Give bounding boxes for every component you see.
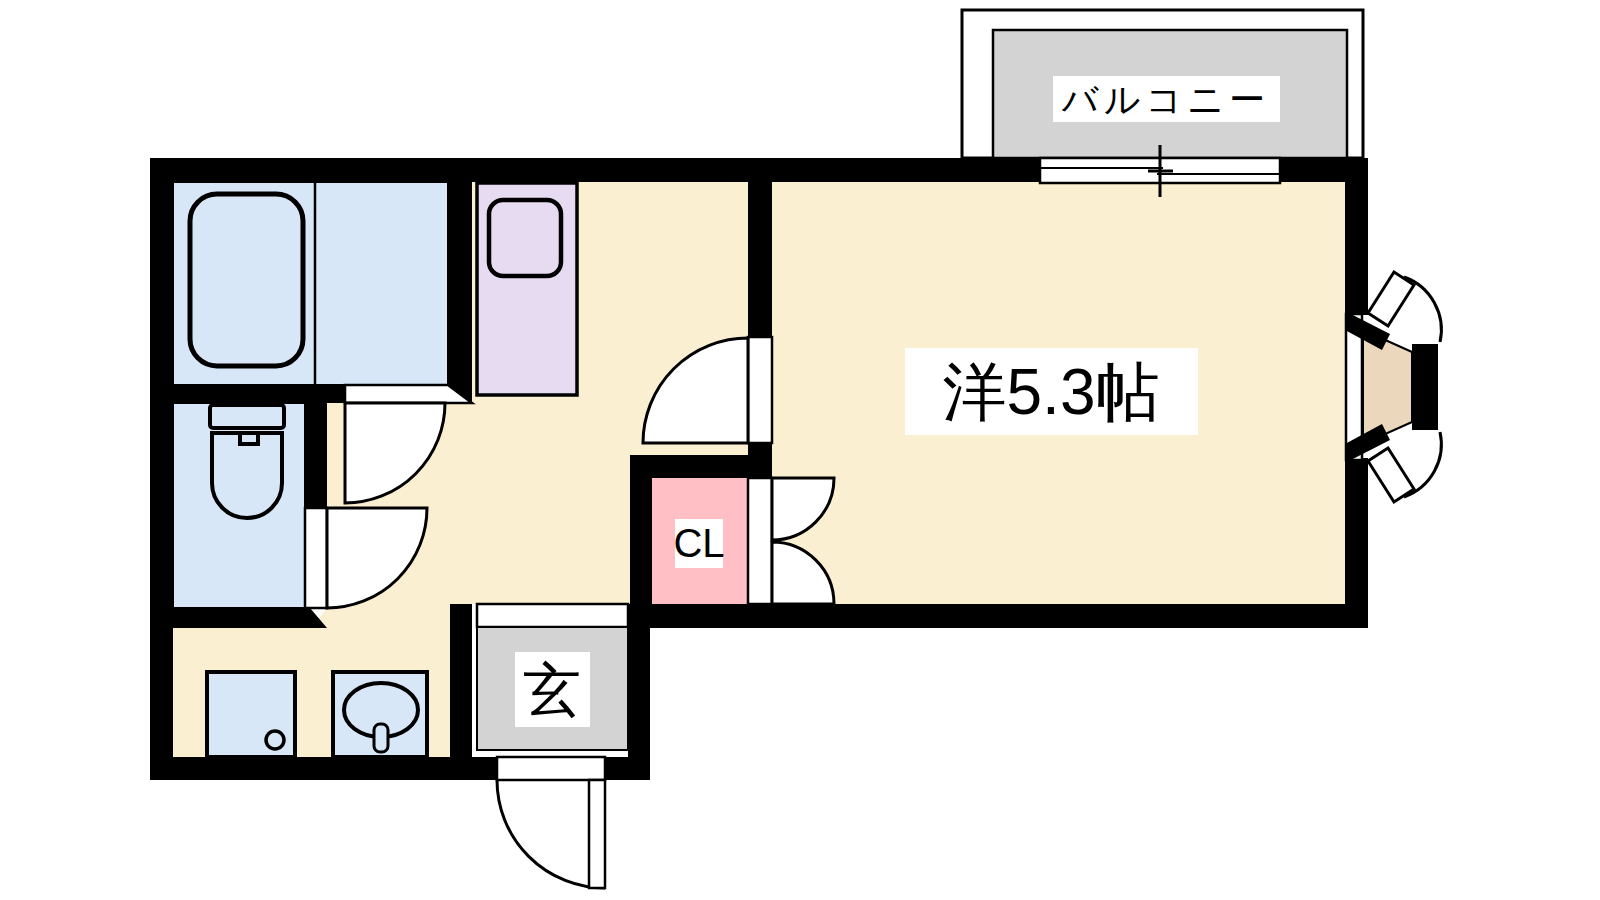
bathroom (173, 182, 448, 385)
wall-bottom-left (150, 757, 472, 780)
main-room-label: 洋5.3帖 (943, 356, 1160, 428)
wall-toilet-bottom (150, 608, 310, 628)
washing-machine-icon (207, 672, 295, 757)
entrance-threshold (497, 757, 605, 780)
main-room-door-leaf (748, 337, 772, 443)
genkan-step (477, 604, 628, 627)
wall-right-bottom (1345, 458, 1368, 628)
wall-closet-left (630, 478, 652, 608)
wall-genkan-right (628, 604, 650, 780)
entrance-label: 玄 (523, 657, 581, 722)
wall-bottom-main (628, 604, 1368, 628)
bathroom-door-leaf (345, 385, 472, 403)
entrance-door-leaf (589, 780, 605, 888)
wall-partition-top (748, 182, 772, 337)
washbasin-icon (333, 672, 427, 757)
wall-genkan-left (450, 604, 472, 780)
kitchen-counter (477, 183, 577, 395)
closet-door-track (748, 478, 772, 604)
floorplan-svg: バルコニー 洋5.3帖 CL 玄 (0, 0, 1600, 900)
bay-casement-leaf-top (1368, 272, 1414, 326)
wall-right-top (1345, 158, 1368, 315)
toilet-room (173, 403, 305, 608)
wall-closet-top (630, 455, 772, 478)
bay-casement-leaf-bottom (1368, 448, 1414, 502)
bay-window-outer-wall (1412, 344, 1438, 430)
entrance-door (497, 757, 628, 888)
balcony-label: バルコニー (1061, 79, 1270, 120)
wall-bath-bottom (150, 385, 345, 403)
floorplan-page: バルコニー 洋5.3帖 CL 玄 (0, 0, 1600, 900)
toilet-door-leaf (305, 508, 327, 608)
wall-toilet-right (305, 403, 327, 508)
closet-label: CL (673, 521, 724, 565)
wall-left (150, 158, 173, 780)
bay-window-floor (1363, 330, 1412, 444)
wall-bath-right (448, 182, 472, 403)
bathroom-floor (173, 182, 448, 385)
